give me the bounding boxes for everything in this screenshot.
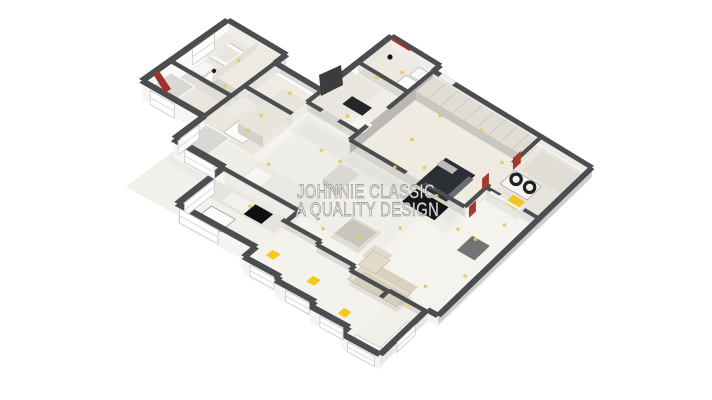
svg-text:A QUALITY DESIGN: A QUALITY DESIGN xyxy=(296,198,439,221)
